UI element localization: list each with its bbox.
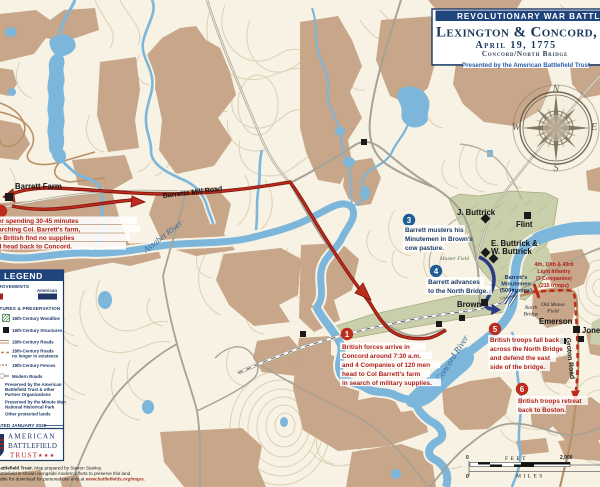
svg-text:4: 4 <box>434 267 439 276</box>
svg-text:REVOLUTIONARY WAR BATTLE: REVOLUTIONARY WAR BATTLE <box>457 12 600 21</box>
svg-text:18th-Century Roads: 18th-Century Roads <box>12 340 54 345</box>
svg-text:North: North <box>524 305 538 311</box>
svg-text:Barrett musters his: Barrett musters his <box>405 227 464 234</box>
svg-text:side of the bridge.: side of the bridge. <box>490 364 545 371</box>
svg-text:battlefield is shown alongside: battlefield is shown alongside modern ef… <box>0 471 132 476</box>
svg-text:Battlefield Trust. Map prepare: Battlefield Trust. Map prepared by Steve… <box>0 466 102 471</box>
svg-text:(215 troops): (215 troops) <box>539 283 569 289</box>
svg-text:BATTLEFIELD: BATTLEFIELD <box>8 442 57 450</box>
svg-text:LEGEND: LEGEND <box>4 271 43 281</box>
svg-text:to the North Bridge.: to the North Bridge. <box>428 288 488 295</box>
svg-text:W. Buttrick: W. Buttrick <box>491 247 532 256</box>
svg-text:Brown: Brown <box>457 300 481 309</box>
svg-text:cow pasture.: cow pasture. <box>405 245 444 252</box>
svg-text:3: 3 <box>407 216 412 225</box>
svg-text:Minutemen in Brown’s: Minutemen in Brown’s <box>405 236 473 243</box>
svg-text:Emerson: Emerson <box>539 317 573 326</box>
svg-text:Concord around 7:30 a.m.: Concord around 7:30 a.m. <box>342 353 421 360</box>
svg-text:N: N <box>552 84 561 95</box>
svg-text:Other protected lands: Other protected lands <box>5 412 51 417</box>
svg-text:18th-Century Woodline: 18th-Century Woodline <box>12 316 61 321</box>
svg-text:in search of military supplies: in search of military supplies. <box>342 380 432 387</box>
svg-text:and defend the east: and defend the east <box>490 355 551 362</box>
svg-text:S: S <box>554 163 559 174</box>
svg-text:0: 0 <box>466 474 469 480</box>
svg-text:no longer in existence: no longer in existence <box>12 354 59 359</box>
svg-text:ilable for download for person: ilable for download for personal use onl… <box>0 477 145 482</box>
svg-text:AMERICAN: AMERICAN <box>8 433 56 441</box>
svg-text:2,000: 2,000 <box>560 455 573 461</box>
svg-text:across the North Bridge: across the North Bridge <box>490 346 563 353</box>
svg-text:head to Col Barrett’s farm: head to Col Barrett’s farm <box>342 371 421 378</box>
svg-text:5: 5 <box>493 325 498 334</box>
svg-text:Barrett’s: Barrett’s <box>505 275 528 281</box>
svg-text:After spending 30-45 minutes: After spending 30-45 minutes <box>0 218 79 225</box>
svg-text:Presented by the American Batt: Presented by the American Battlefield Tr… <box>462 62 590 69</box>
svg-text:Muster Field: Muster Field <box>439 256 469 262</box>
svg-text:searching Col. Barrett’s farm,: searching Col. Barrett’s farm, <box>0 227 80 234</box>
svg-text:(3 Companies): (3 Companies) <box>536 276 572 282</box>
svg-text:FEET: FEET <box>505 456 528 462</box>
svg-text:Concord/North Bridge: Concord/North Bridge <box>482 50 568 58</box>
svg-text:Modern Roads: Modern Roads <box>12 374 43 379</box>
svg-text:British troops retreat: British troops retreat <box>518 398 582 405</box>
svg-text:American: American <box>37 288 57 293</box>
svg-text:4th, 10th & 43rd: 4th, 10th & 43rd <box>535 262 574 268</box>
svg-text:18th-Century Fences: 18th-Century Fences <box>12 363 56 368</box>
svg-text:E: E <box>590 122 597 133</box>
svg-text:Field: Field <box>546 309 559 315</box>
svg-text:and head back to Concord.: and head back to Concord. <box>0 244 72 251</box>
svg-text:(500 troops): (500 troops) <box>500 288 532 294</box>
svg-text:Bridge: Bridge <box>524 312 539 318</box>
svg-text:Barrett advances: Barrett advances <box>428 279 480 286</box>
svg-text:Barrett Farm: Barrett Farm <box>15 182 62 191</box>
svg-text:Light Infantry: Light Infantry <box>537 269 570 275</box>
svg-text:Lexington & Concord, Ma: Lexington & Concord, Ma <box>436 25 600 41</box>
svg-text:J. Buttrick: J. Buttrick <box>457 208 496 217</box>
svg-text:back to Boston.: back to Boston. <box>518 407 566 414</box>
svg-text:TRUST: TRUST <box>10 452 38 460</box>
svg-text:18th-Century Structures: 18th-Century Structures <box>12 328 63 333</box>
svg-text:and 4 Companies of 120 men: and 4 Companies of 120 men <box>342 362 430 369</box>
svg-text:Partner Organizations: Partner Organizations <box>5 392 51 397</box>
svg-text:1: 1 <box>345 330 350 339</box>
svg-text:0: 0 <box>466 455 469 461</box>
svg-text:FEATURES & PRESERVATION: FEATURES & PRESERVATION <box>0 306 61 311</box>
svg-text:TROOP MOVEMENTS: TROOP MOVEMENTS <box>0 284 29 289</box>
svg-text:Jone: Jone <box>582 326 600 335</box>
svg-text:the British find no supplies: the British find no supplies <box>0 235 75 242</box>
svg-text:Old Manse: Old Manse <box>541 302 565 308</box>
svg-text:National Historical Park: National Historical Park <box>5 405 55 410</box>
svg-text:British troops fall back: British troops fall back <box>490 337 560 344</box>
svg-text:British forces arrive in: British forces arrive in <box>342 344 410 351</box>
svg-text:MILES: MILES <box>516 474 545 480</box>
svg-text:6: 6 <box>520 385 525 394</box>
svg-text:Minutemen: Minutemen <box>501 282 531 288</box>
svg-text:Flint: Flint <box>516 220 533 229</box>
svg-text:★ ★ ★: ★ ★ ★ <box>38 453 55 459</box>
